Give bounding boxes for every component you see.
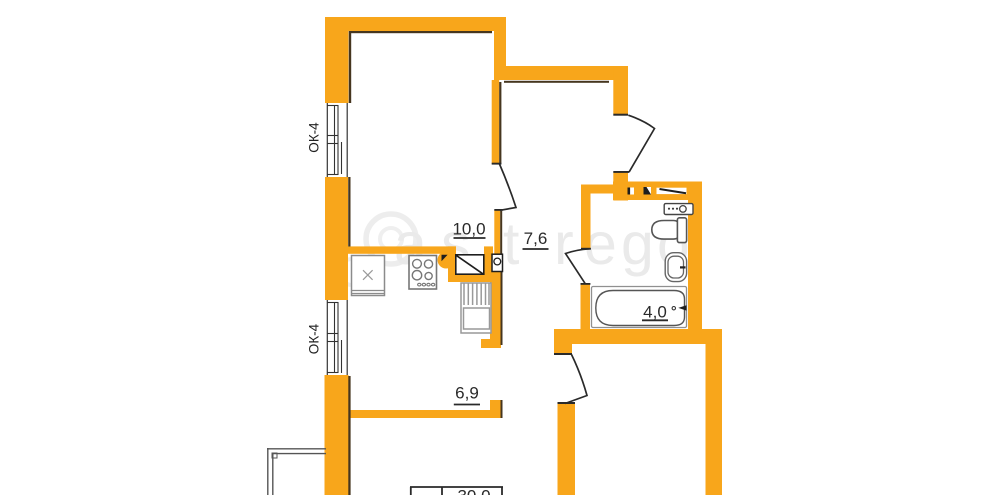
svg-text:30,0: 30,0 (457, 487, 490, 495)
svg-text:6,9: 6,9 (455, 384, 479, 403)
svg-text:10,0: 10,0 (452, 220, 485, 239)
svg-text:ОК-4: ОК-4 (307, 122, 322, 153)
svg-text:ОК-4: ОК-4 (307, 323, 322, 354)
svg-text:4,0: 4,0 (643, 302, 667, 321)
svg-text:7,6: 7,6 (524, 229, 548, 248)
